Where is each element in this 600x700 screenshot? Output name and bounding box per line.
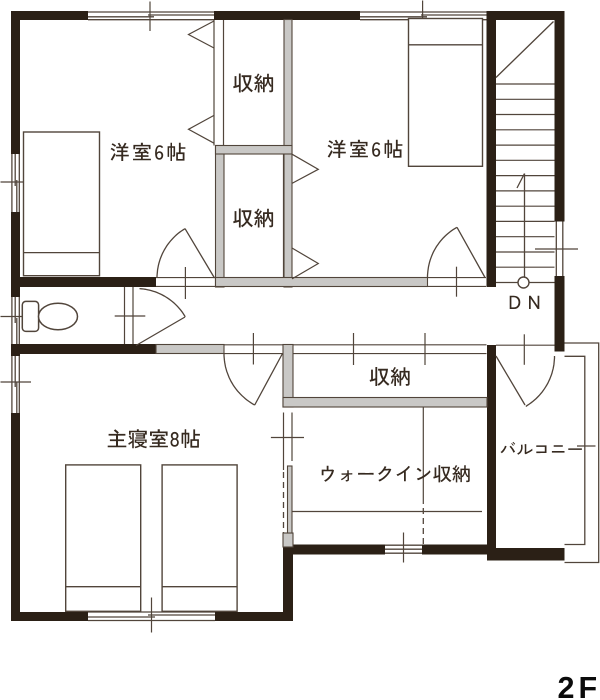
svg-text:2F: 2F (558, 671, 600, 700)
